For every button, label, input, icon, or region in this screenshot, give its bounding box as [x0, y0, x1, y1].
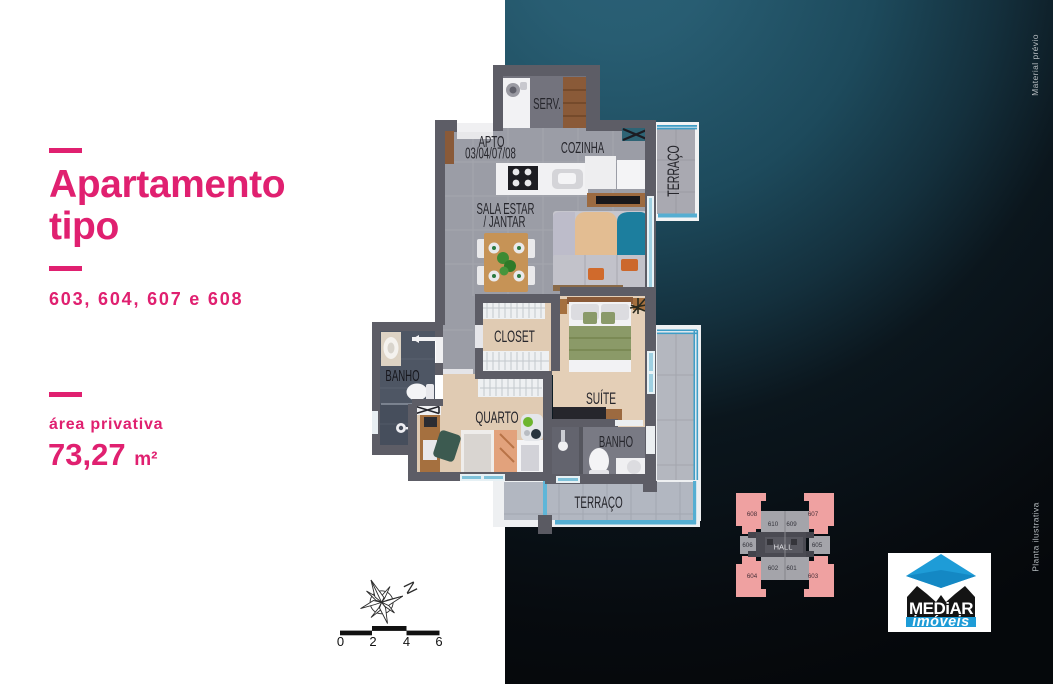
- svg-text:609: 609: [786, 521, 797, 528]
- svg-text:605: 605: [812, 542, 823, 549]
- svg-text:N: N: [399, 579, 419, 597]
- svg-text:606: 606: [742, 542, 753, 549]
- svg-text:602: 602: [768, 565, 779, 572]
- svg-text:4: 4: [403, 634, 410, 649]
- svg-text:6: 6: [435, 634, 442, 649]
- svg-text:03/04/07/08: 03/04/07/08: [465, 144, 516, 162]
- svg-text:BANHO: BANHO: [599, 432, 633, 450]
- svg-text:2: 2: [369, 634, 376, 649]
- svg-text:0: 0: [337, 634, 344, 649]
- svg-text:601: 601: [786, 565, 797, 572]
- svg-text:603: 603: [808, 573, 819, 580]
- svg-text:/ JANTAR: / JANTAR: [484, 212, 526, 230]
- svg-text:imóveis: imóveis: [912, 614, 970, 630]
- svg-text:610: 610: [768, 521, 779, 528]
- svg-text:CLOSET: CLOSET: [494, 326, 535, 345]
- svg-text:607: 607: [808, 511, 819, 518]
- svg-text:COZINHA: COZINHA: [561, 138, 604, 156]
- svg-text:608: 608: [747, 511, 758, 518]
- svg-text:TERRAÇO: TERRAÇO: [574, 493, 622, 511]
- svg-text:SUÍTE: SUÍTE: [586, 388, 616, 407]
- svg-text:TERRAÇO: TERRAÇO: [663, 145, 682, 196]
- svg-text:BANHO: BANHO: [385, 366, 419, 384]
- svg-text:HALL: HALL: [774, 543, 793, 552]
- svg-text:SERV.: SERV.: [533, 94, 561, 112]
- svg-text:604: 604: [747, 573, 758, 580]
- svg-text:QUARTO: QUARTO: [475, 407, 518, 426]
